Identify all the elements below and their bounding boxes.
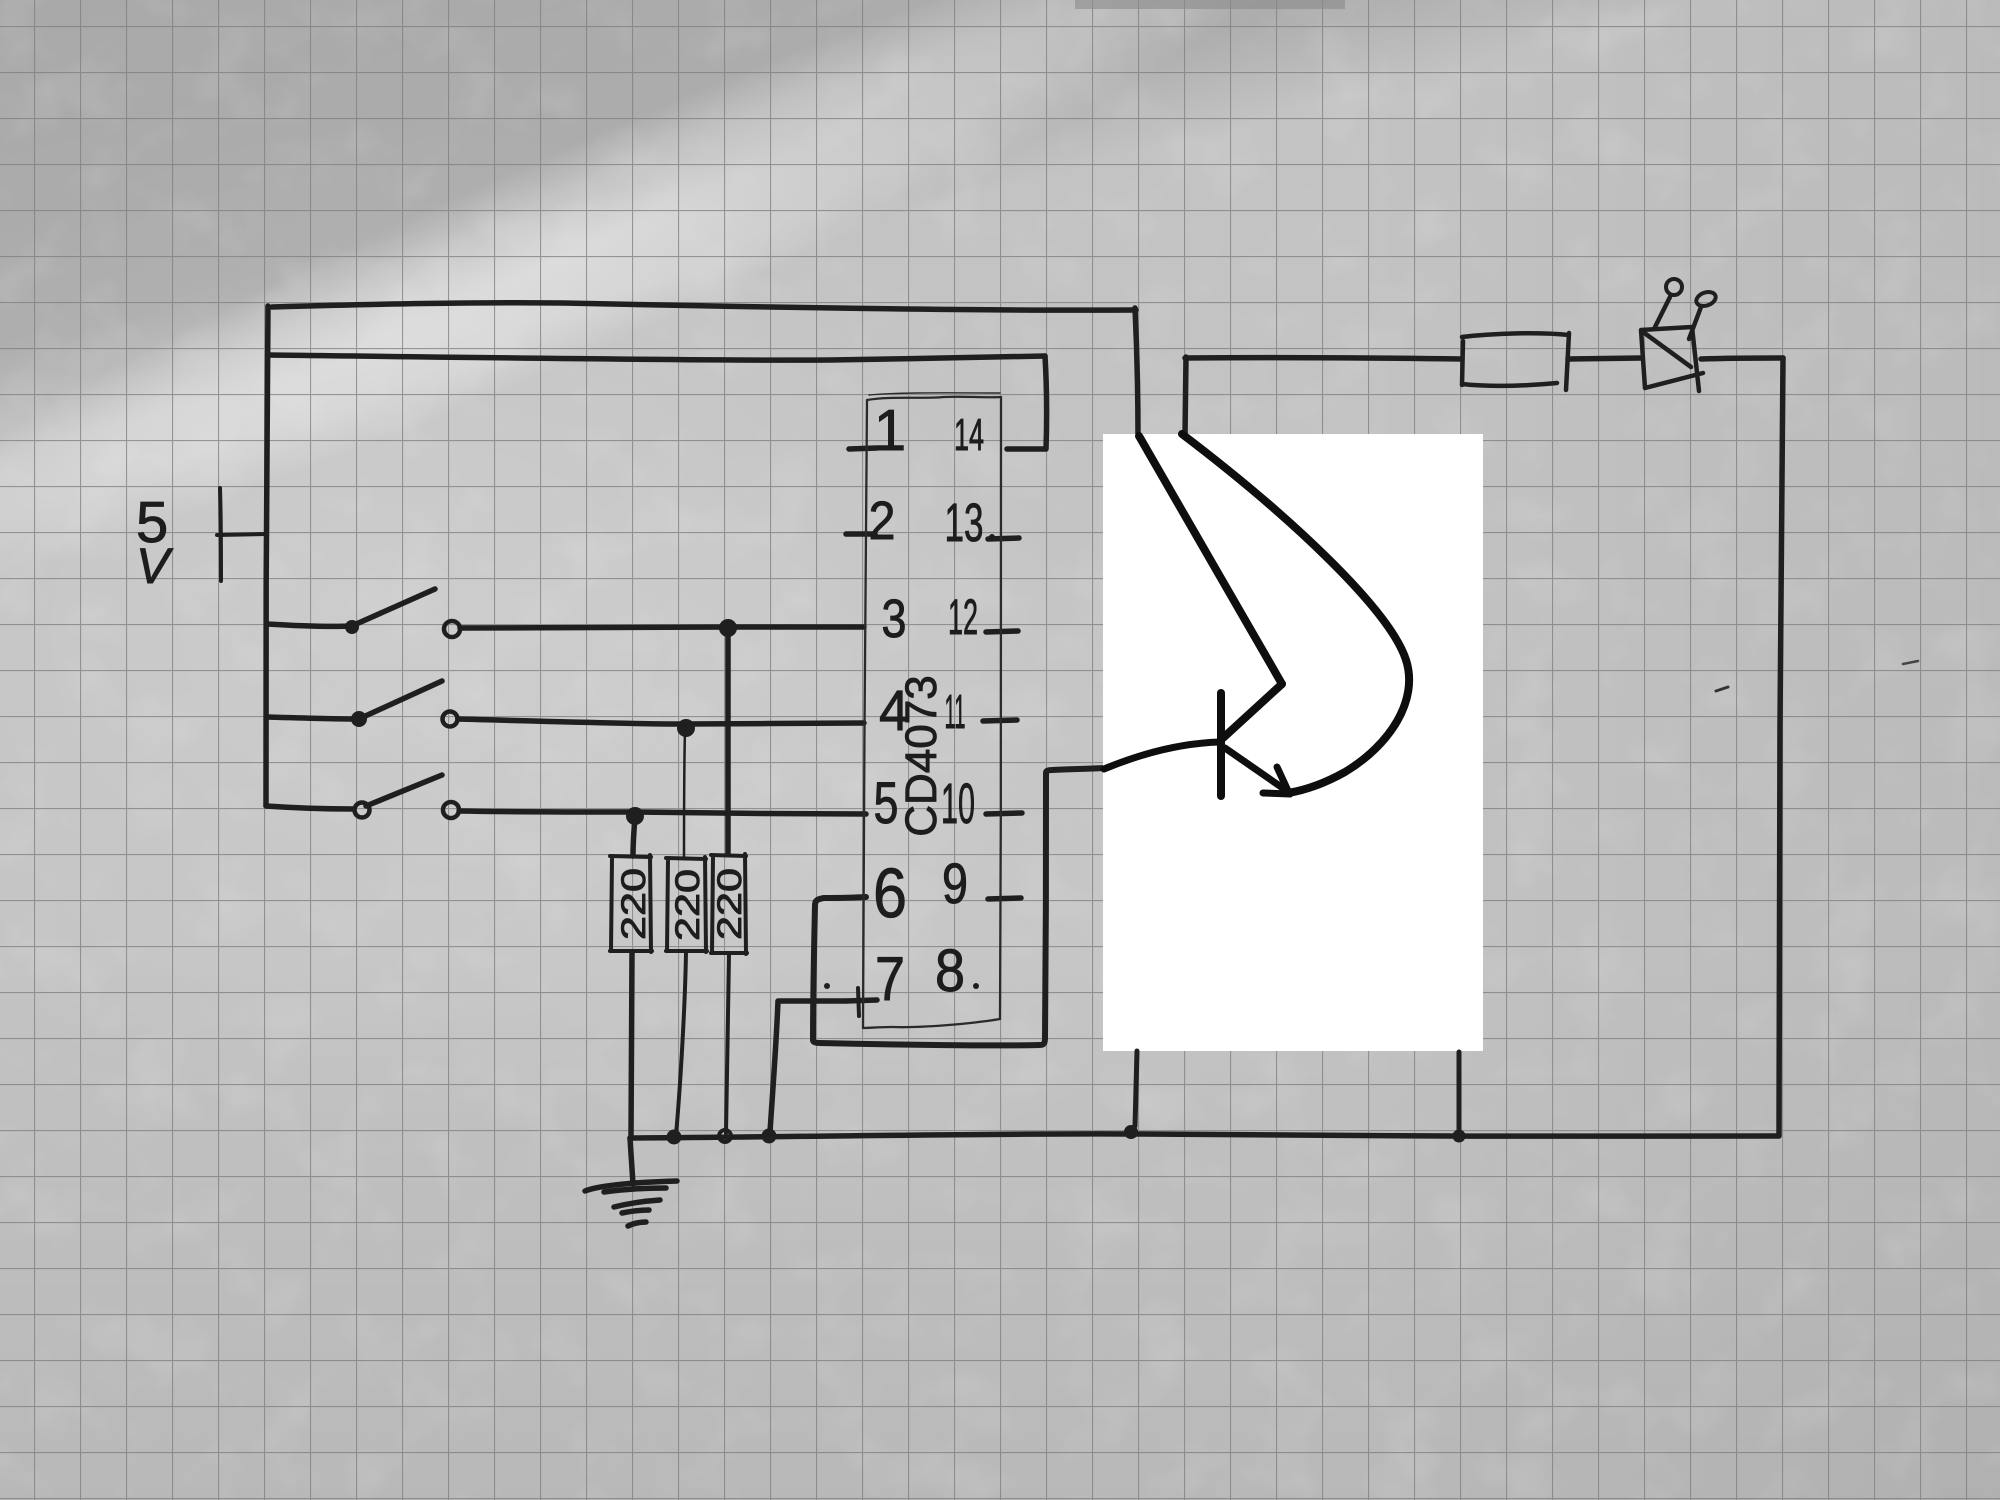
svg-text:220: 220 (711, 868, 749, 940)
svg-text:CD4073: CD4073 (897, 675, 946, 836)
svg-text:2: 2 (869, 491, 896, 551)
svg-text:12: 12 (948, 589, 978, 645)
svg-text:10: 10 (941, 772, 975, 836)
svg-text:3: 3 (882, 589, 907, 649)
svg-text:14: 14 (954, 409, 984, 460)
svg-text:7: 7 (875, 945, 905, 1014)
svg-text:6: 6 (873, 854, 907, 932)
svg-text:13: 13 (945, 493, 984, 553)
svg-text:V: V (136, 538, 174, 594)
svg-text:220: 220 (669, 869, 707, 941)
svg-text:9: 9 (942, 852, 968, 916)
svg-text:220: 220 (615, 868, 653, 940)
svg-text:1: 1 (874, 398, 906, 463)
svg-text:11: 11 (945, 686, 966, 739)
svg-text:5: 5 (874, 770, 899, 836)
svg-text:8: 8 (935, 937, 965, 1004)
